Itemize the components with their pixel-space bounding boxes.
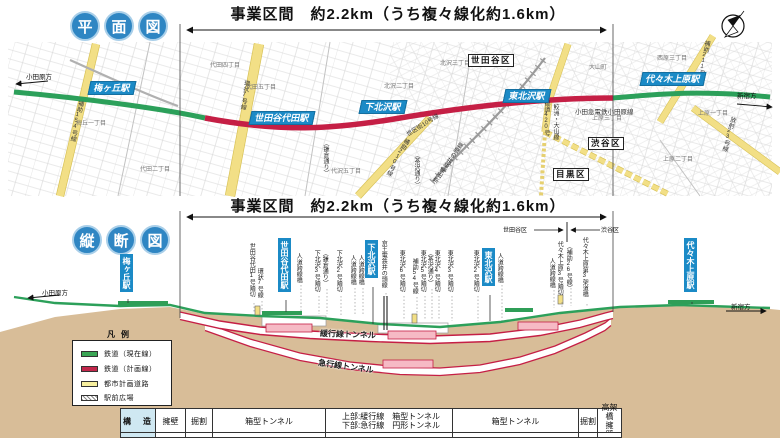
- crossing-label: 人道跨線橋: [496, 253, 502, 283]
- legend-chip-planned-line: [81, 366, 98, 372]
- plan-title: 事業区間 約2.2km（うち複々線化約1.6km）: [180, 3, 616, 24]
- road-todo420: 都道420号: [542, 100, 551, 136]
- legend-chip-station-plaza: [81, 395, 98, 401]
- profile-title: 事業区間 約2.2km（うち複々線化約1.6km）: [180, 195, 616, 216]
- crossing-label: 世田谷代田1号踏切: [248, 243, 254, 297]
- legend-item-label: 駅前広場: [104, 393, 134, 403]
- profile-dir-shinjuku: 新宿方: [731, 301, 751, 311]
- structure-upper: 上部:緩行線 箱型トンネル: [342, 412, 440, 421]
- legend-item: 都市計画道路: [81, 379, 149, 389]
- profile-station-higashikitazawa: 東北沢駅: [482, 248, 495, 286]
- legend-title: 凡例: [72, 329, 170, 340]
- plan-dir-odawara: 小田原方: [26, 71, 52, 81]
- structure-cell: 擁壁: [156, 409, 186, 433]
- compass-icon: [722, 11, 744, 37]
- profile-badge-char: 断: [106, 225, 136, 255]
- district-label: 上原一丁目: [698, 108, 728, 117]
- plan-station-umegaoka: 梅ヶ丘駅: [88, 81, 137, 95]
- district-label: 代田四丁目: [210, 60, 240, 69]
- district-label: 代田二丁目: [140, 164, 170, 173]
- legend-chip-current-line: [81, 351, 98, 357]
- profile-badge: 縦 断 図: [72, 225, 170, 255]
- district-label: 梅丘一丁目: [76, 118, 106, 127]
- plan-station-yoyogiuehara: 代々木上原駅: [640, 72, 707, 86]
- crossing-label: 京王電鉄井の頭線: [380, 240, 386, 288]
- crossing-label: （鎌倉通り）: [321, 250, 327, 286]
- crossing-label: （茶沢通り）: [426, 250, 432, 286]
- structure-viaduct: 高架橋: [598, 403, 621, 421]
- district-label: 北沢三丁目: [440, 58, 470, 67]
- plan-badge-char: 平: [70, 11, 100, 41]
- profile-station-umegaoka: 梅ヶ丘駅: [120, 254, 133, 292]
- profile-station-shimokitazawa: 下北沢駅: [365, 240, 378, 278]
- profile-station-setagayadaita: 世田谷代田駅: [278, 238, 291, 292]
- legend-chip-planned-road: [81, 381, 98, 387]
- crossing-label: 補助54号線: [411, 258, 417, 294]
- crossing-label: 代々木上原3号踏切: [556, 241, 562, 295]
- boundary-shibuya: 渋谷区: [601, 225, 619, 234]
- crossing-label: 人道跨線橋: [349, 255, 355, 285]
- crossing-label: 人道跨線橋: [295, 253, 301, 283]
- road-kamakura: （鎌倉通り）: [321, 140, 330, 176]
- structure-table-row2: [120, 432, 622, 438]
- crossing-label: 東北沢3号踏切: [446, 250, 452, 292]
- district-label: 上原二丁目: [663, 154, 693, 163]
- structure-cell: 掘割: [186, 409, 213, 433]
- structure-lower: 下部:急行線 円形トンネル: [342, 421, 440, 430]
- structure-cell: 箱型トンネル: [453, 409, 579, 433]
- crossing-label: 東北沢2号踏切: [472, 250, 478, 292]
- road-samezu-oyama: 鮫洲・大山線: [551, 104, 560, 140]
- plan-badge: 平 面 図: [70, 11, 168, 41]
- crossing-label: 下北沢2号踏切: [335, 250, 341, 292]
- structure-cell: 高架橋 擁 壁: [598, 409, 621, 433]
- district-label: 北沢二丁目: [384, 81, 414, 90]
- legend-item-label: 鉄道（計画線）: [104, 364, 157, 374]
- structure-cell: 上部:緩行線 箱型トンネル 下部:急行線 円形トンネル: [326, 409, 453, 433]
- profile-badge-char: 縦: [72, 225, 102, 255]
- plan-station-setagayadaita: 世田谷代田駅: [249, 111, 316, 125]
- crossing-label: 東北沢4号踏切: [433, 250, 439, 292]
- legend-item: 鉄道（現在線）: [81, 349, 157, 359]
- legend-box: 鉄道（現在線） 鉄道（計画線） 都市計画道路 駅前広場: [72, 340, 172, 406]
- crossing-label: （補助26号線）: [565, 243, 571, 291]
- profile-dir-odawara: 小田原方: [42, 287, 68, 297]
- profile-badge-char: 図: [140, 225, 170, 255]
- crossing-label: 人道跨線橋: [548, 258, 554, 288]
- district-label: 西原三丁目: [657, 53, 687, 62]
- legend-item-label: 都市計画道路: [104, 379, 149, 389]
- ward-setagaya: 世田谷区: [468, 54, 514, 67]
- ward-shibuya: 渋谷区: [588, 137, 624, 150]
- district-label: 代田五丁目: [246, 82, 276, 91]
- structure-header: 構 造: [121, 409, 156, 433]
- crossing-label: 東北沢6号踏切: [398, 250, 404, 292]
- crossing-label: 東北沢5号踏切: [419, 250, 425, 292]
- structure-table: 構 造 擁壁 掘割 箱型トンネル 上部:緩行線 箱型トンネル 下部:急行線 円形…: [120, 408, 622, 434]
- plan-badge-char: 面: [104, 11, 134, 41]
- ward-meguro: 目黒区: [553, 168, 589, 181]
- legend-item: 鉄道（計画線）: [81, 364, 157, 374]
- plan-badge-char: 図: [138, 11, 168, 41]
- structure-cell: 箱型トンネル: [213, 409, 326, 433]
- district-label: 代沢五丁目: [331, 166, 361, 175]
- district-label: 上原三丁目: [592, 113, 622, 122]
- structure-cell: 掘割: [579, 409, 598, 433]
- plan-dir-shinjuku: 新宿方: [737, 90, 757, 100]
- plan-station-higashikitazawa: 東北沢駅: [503, 89, 552, 103]
- profile-station-yoyogiuehara: 代々木上原駅: [684, 238, 697, 292]
- district-label: 大山町: [589, 62, 607, 71]
- crossing-label: 下北沢3号踏切: [313, 250, 319, 292]
- road-chazawa: （茶沢通り）: [412, 152, 421, 188]
- plan-station-shimokitazawa: 下北沢駅: [359, 100, 408, 114]
- legend-item: 駅前広場: [81, 393, 134, 403]
- crossing-label: 環状7号線: [256, 268, 262, 298]
- project-diagram: 平 面 図 事業区間 約2.2km（うち複々線化約1.6km） 小田原方 新宿方…: [0, 0, 780, 438]
- ward-boundary-marker: [534, 222, 600, 242]
- local-tunnel-label: 緩行線トンネル: [320, 328, 376, 341]
- crossing-label: 人道跨線橋: [357, 255, 363, 285]
- boundary-setagaya: 世田谷区: [503, 225, 527, 234]
- legend-item-label: 鉄道（現在線）: [104, 349, 157, 359]
- crossing-label: 代々木上原第3架道橋: [581, 237, 587, 297]
